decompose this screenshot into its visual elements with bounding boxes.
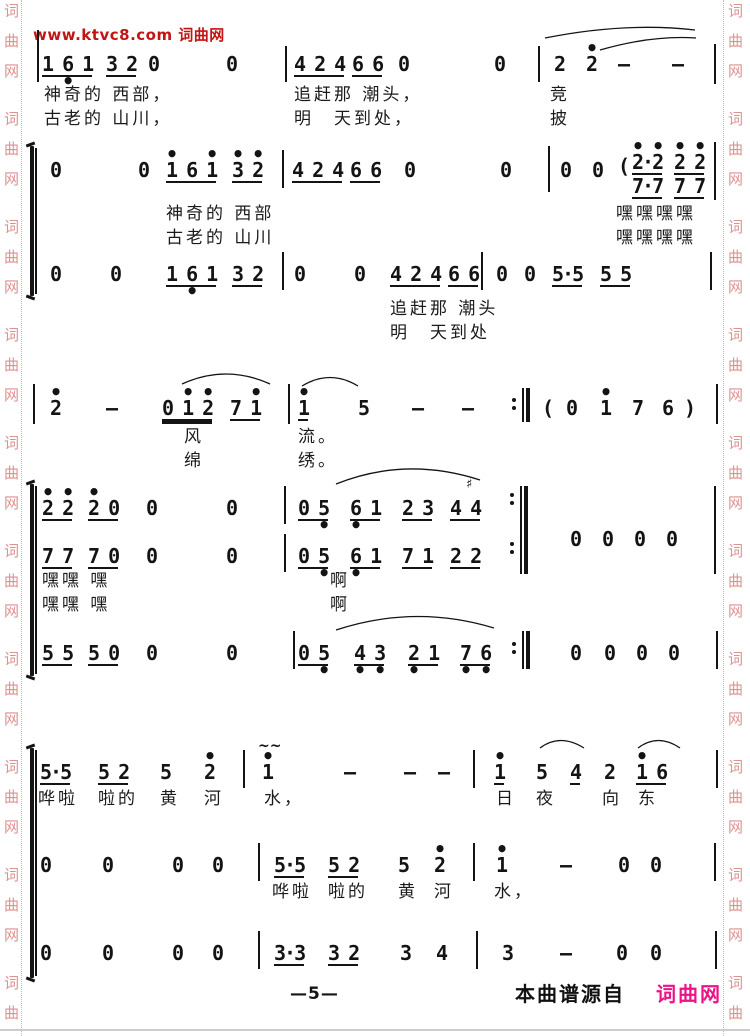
repeat-dot	[510, 542, 514, 546]
note-cell: •1	[600, 388, 610, 430]
note-cell: 0	[110, 254, 120, 296]
note-cell: 1 6 1 •	[42, 44, 92, 86]
bottom-border-line	[0, 1029, 750, 1031]
lyric-text: 黄	[398, 881, 418, 903]
octave-dots	[662, 421, 672, 430]
repeat-dot	[512, 642, 516, 646]
barline	[35, 486, 37, 674]
barline	[282, 150, 284, 188]
note-cell: •2	[50, 388, 60, 430]
octave-dots	[586, 77, 596, 86]
lyric-text: 风	[184, 426, 204, 448]
repeat-dot	[512, 398, 516, 402]
note-cell: 0	[524, 254, 534, 296]
lyric-text: 水，	[264, 788, 304, 810]
octave-dots	[560, 878, 570, 887]
note-cell: 0	[146, 488, 156, 530]
note-cell: 0	[172, 845, 182, 887]
octave-dots	[50, 287, 60, 296]
barline	[284, 486, 286, 524]
octave-dots	[496, 287, 506, 296]
octave-dots	[684, 421, 694, 430]
note-cell: —	[106, 388, 116, 430]
note-cell: —	[560, 845, 570, 887]
octave-dots	[668, 666, 678, 675]
lyric-text: 啊	[330, 594, 350, 616]
note-cell: 3 2	[232, 254, 262, 296]
octave-dots	[600, 421, 610, 430]
octave-dots: • •	[460, 666, 490, 675]
lyric-text: 绵	[184, 450, 204, 472]
barline	[258, 843, 260, 881]
octave-dots	[226, 77, 236, 86]
octave-dots	[358, 421, 368, 430]
lyric-text: 嘿嘿嘿嘿	[616, 227, 696, 249]
repeat-thin-bar	[520, 486, 522, 574]
repeat-thick-bar	[524, 486, 528, 574]
note-cell: 0	[172, 933, 182, 975]
note-cell: 2	[554, 44, 564, 86]
repeat-thin-bar	[522, 631, 524, 669]
lyric-text: 东	[638, 788, 658, 810]
octave-dots	[632, 421, 642, 430]
barline	[35, 750, 37, 976]
note-cell: 7 7	[674, 166, 704, 208]
note-cell: 0	[650, 933, 660, 975]
note-cell: • •0 1 2	[162, 388, 212, 430]
octave-dots	[292, 183, 342, 192]
note-cell: 0	[560, 150, 570, 192]
note-cell: 4 2 4	[294, 44, 344, 86]
note-cell: 0	[138, 150, 148, 192]
mordent-ornament: ~~	[258, 738, 281, 754]
octave-dots	[570, 666, 580, 675]
lyric-text: 披	[550, 108, 570, 130]
octave-dots	[450, 569, 480, 578]
repeat-dot	[510, 501, 514, 505]
octave-dots	[42, 666, 72, 675]
note-cell: —	[672, 44, 682, 86]
octave-dots	[600, 287, 630, 296]
repeat-dot	[510, 550, 514, 554]
octave-dots	[166, 183, 216, 192]
lyric-text: 嘿嘿 嘿	[42, 594, 110, 616]
note-cell: 0	[50, 150, 60, 192]
lyric-text: 明 天到处	[390, 322, 490, 344]
note-cell: 0	[566, 388, 576, 430]
note-cell: 0 5 •	[298, 536, 328, 578]
note-cell: 0	[618, 845, 628, 887]
note-cell: 4	[570, 752, 580, 794]
lyric-text: 哗啦	[272, 881, 312, 903]
octave-dots: •	[166, 287, 216, 296]
barline	[714, 44, 716, 84]
note-cell: 0 5 •	[298, 488, 328, 530]
note-cell: 0	[102, 845, 112, 887]
lyric-text: 向	[602, 788, 622, 810]
octave-dots: •	[408, 666, 438, 675]
octave-dots: •	[350, 569, 380, 578]
note-cell: 0	[40, 845, 50, 887]
octave-dots	[650, 966, 660, 975]
repeat-dot	[512, 650, 516, 654]
note-cell: 6 1•	[350, 488, 380, 530]
note-cell: 0	[500, 150, 510, 192]
octave-dots	[500, 183, 510, 192]
octave-dots	[566, 421, 576, 430]
note-cell: 7	[632, 388, 642, 430]
octave-dots	[226, 666, 236, 675]
note-cell: 0	[212, 933, 222, 975]
note-cell: 3 2	[106, 44, 136, 86]
octave-dots	[552, 287, 582, 296]
lyric-text: 绣。	[298, 450, 338, 472]
octave-dots	[618, 77, 628, 86]
octave-dots	[232, 287, 262, 296]
lyric-text: 古老的 山川	[166, 227, 274, 249]
note-cell: 0	[602, 519, 612, 561]
note-cell: 7 6• •	[460, 633, 490, 675]
barline	[33, 384, 35, 424]
score-canvas: 1 6 1 • 3 2 0 0 4 2 4 6 6 0 0 2 •2 — — 0…	[0, 0, 750, 1036]
note-cell: • •2 2	[42, 488, 72, 530]
barline	[716, 750, 718, 788]
octave-dots	[618, 878, 628, 887]
octave-dots	[40, 878, 50, 887]
octave-dots	[436, 966, 446, 975]
octave-dots: • •	[354, 666, 384, 675]
octave-dots	[560, 183, 570, 192]
note-cell: 5·5	[552, 254, 582, 296]
note-cell: 4	[436, 933, 446, 975]
note-cell: 0	[50, 254, 60, 296]
octave-dots	[212, 878, 222, 887]
note-cell: 0	[226, 633, 236, 675]
note-cell: —	[438, 752, 448, 794]
octave-dots	[400, 966, 410, 975]
octave-dots	[50, 421, 60, 430]
barline	[714, 843, 716, 881]
note-cell: 4 2 4	[292, 150, 342, 192]
note-cell: 0	[650, 845, 660, 887]
octave-dots	[602, 552, 612, 561]
note-cell: •1	[298, 388, 308, 430]
barline	[538, 46, 540, 82]
note-cell: 0	[570, 633, 580, 675]
note-cell: 6 6	[352, 44, 382, 86]
note-cell: 6	[662, 388, 672, 430]
barline	[710, 252, 712, 290]
note-cell: 7·7	[632, 166, 662, 208]
repeat-thick-bar	[526, 388, 530, 422]
octave-dots	[232, 183, 262, 192]
lyric-text: 古老的 山川，	[44, 108, 172, 130]
note-cell: 3	[502, 933, 512, 975]
note-cell: 0	[494, 44, 504, 86]
page-number: —5—	[290, 984, 339, 1004]
barline	[473, 843, 475, 881]
note-cell: 1 6 1 •	[166, 254, 216, 296]
sheet-music-page: 词曲网词曲网词曲网词曲网词曲网词曲网词曲网词曲网词曲网词曲网 词曲网词曲网词曲网…	[0, 0, 750, 1036]
barline	[476, 931, 478, 969]
footer-brand-link[interactable]: 词曲网	[656, 978, 722, 1007]
octave-dots	[560, 966, 570, 975]
octave-dots	[494, 77, 504, 86]
note-cell: 0	[570, 519, 580, 561]
note-cell: 0	[226, 536, 236, 578]
note-cell: —	[344, 752, 354, 794]
octave-dots	[102, 966, 112, 975]
note-cell: 0	[212, 845, 222, 887]
note-cell: 6 6	[448, 254, 478, 296]
note-cell: 0	[146, 633, 156, 675]
note-cell: 4 3• •	[354, 633, 384, 675]
note-cell: 0 5 •	[298, 633, 328, 675]
note-cell: • •3 2	[232, 150, 262, 192]
octave-dots	[50, 183, 60, 192]
lyric-text: 河	[204, 788, 224, 810]
note-cell: —	[618, 44, 628, 86]
note-cell: 0	[226, 488, 236, 530]
octave-dots	[354, 287, 364, 296]
note-cell: 0	[616, 933, 626, 975]
note-cell: 0	[40, 933, 50, 975]
octave-dots	[570, 552, 580, 561]
note-cell: 7 1	[402, 536, 432, 578]
repeat-thick-bar	[526, 631, 530, 669]
barline	[481, 252, 483, 290]
octave-dots	[172, 878, 182, 887]
note-cell: 0	[634, 519, 644, 561]
octave-dots	[404, 785, 414, 794]
note-cell: 2 1•	[408, 633, 438, 675]
octave-dots	[110, 287, 120, 296]
note-cell: • •1 6 1	[166, 150, 216, 192]
octave-dots	[230, 421, 260, 430]
lyric-text: 黄	[160, 788, 180, 810]
octave-dots	[672, 77, 682, 86]
note-cell: )	[684, 388, 694, 430]
lyric-text: 啊	[330, 570, 350, 592]
repeat-dot	[512, 406, 516, 410]
barline	[258, 931, 260, 969]
barline	[284, 534, 286, 572]
note-cell: 3·3	[274, 933, 304, 975]
octave-dots: •	[298, 569, 328, 578]
note-cell: (	[618, 146, 628, 188]
note-cell: (	[542, 388, 552, 430]
octave-dots	[404, 183, 414, 192]
note-cell: 3 2	[328, 933, 358, 975]
note-cell: 0	[148, 44, 158, 86]
footer-source-text: 本曲谱源自	[515, 978, 625, 1007]
barline	[37, 30, 39, 82]
lyric-text: 神奇的 西部，	[44, 84, 172, 106]
note-cell: 0	[146, 536, 156, 578]
octave-dots	[604, 666, 614, 675]
lyric-text: 啦的	[98, 788, 138, 810]
note-cell: 6 1•	[350, 536, 380, 578]
system-bracket	[30, 748, 34, 978]
note-cell: • 2 0	[88, 488, 118, 530]
octave-dots	[106, 421, 116, 430]
note-cell: 5 5	[600, 254, 630, 296]
sharp-accidental: ♯	[466, 477, 472, 492]
barline	[716, 384, 718, 424]
barline	[243, 750, 245, 788]
note-cell: •7 1	[230, 388, 260, 430]
note-cell: 0	[294, 254, 304, 296]
note-cell: 2 2	[450, 536, 480, 578]
system-bracket	[30, 484, 34, 676]
octave-dots	[88, 666, 118, 675]
octave-dots	[212, 966, 222, 975]
octave-dots	[40, 966, 50, 975]
barline	[716, 631, 718, 669]
barline	[714, 142, 716, 200]
note-cell: 0	[398, 44, 408, 86]
lyric-text: 追赶那 潮头	[390, 298, 498, 320]
lyric-text: 河	[434, 881, 454, 903]
note-cell: 5 0	[88, 633, 118, 675]
octave-dots	[592, 183, 602, 192]
note-cell: 3	[400, 933, 410, 975]
note-cell: 4 4	[450, 488, 480, 530]
lyric-text: 嘿嘿 嘿	[42, 570, 110, 592]
octave-dots	[616, 966, 626, 975]
octave-dots	[402, 569, 432, 578]
octave-dots	[102, 878, 112, 887]
lyric-text: 啦的	[328, 881, 368, 903]
lyric-text: 竞	[550, 84, 570, 106]
note-cell: 0	[354, 254, 364, 296]
note-cell: 6 6	[350, 150, 380, 192]
octave-dots	[634, 552, 644, 561]
octave-dots	[390, 287, 440, 296]
lyric-text: 追赶那 潮头，	[294, 84, 422, 106]
octave-dots	[448, 287, 478, 296]
barline	[35, 148, 37, 294]
lyric-text: 流。	[298, 426, 338, 448]
octave-dots	[350, 183, 380, 192]
note-cell: —	[404, 752, 414, 794]
lyric-text: 水，	[494, 881, 534, 903]
octave-dots	[274, 966, 304, 975]
repeat-thin-bar	[522, 388, 524, 422]
note-cell: —	[560, 933, 570, 975]
octave-dots	[666, 552, 676, 561]
lyric-text: 哗啦	[38, 788, 78, 810]
barline	[288, 384, 290, 424]
note-cell: 0	[102, 933, 112, 975]
note-cell: —	[412, 388, 422, 430]
note-cell: 0	[404, 150, 414, 192]
octave-dots	[328, 966, 358, 975]
lyric-text: 明 天到处，	[294, 108, 414, 130]
note-cell: 0	[604, 633, 614, 675]
barline	[473, 750, 475, 788]
octave-dots	[524, 287, 534, 296]
octave-dots	[542, 421, 552, 430]
octave-dots: •	[298, 666, 328, 675]
octave-dots	[636, 666, 646, 675]
note-cell: 4 2 4	[390, 254, 440, 296]
note-cell: 0	[592, 150, 602, 192]
lyric-text: 神奇的 西部	[166, 203, 274, 225]
octave-dots	[294, 287, 304, 296]
barline	[548, 146, 550, 192]
octave-dots	[462, 421, 472, 430]
note-cell: 0	[496, 254, 506, 296]
note-cell: 5	[358, 388, 368, 430]
repeat-dot	[510, 493, 514, 497]
octave-dots	[618, 179, 628, 188]
note-cell: 5 5	[42, 633, 72, 675]
octave-dots	[412, 421, 422, 430]
note-cell: 0	[636, 633, 646, 675]
octave-dots	[502, 966, 512, 975]
octave-dots	[138, 183, 148, 192]
barline	[285, 46, 287, 82]
note-cell: 0	[666, 519, 676, 561]
note-cell: 2 3	[402, 488, 432, 530]
octave-dots	[344, 785, 354, 794]
lyric-text: 日	[496, 788, 516, 810]
note-cell: —	[462, 388, 472, 430]
octave-dots	[570, 785, 580, 794]
octave-dots	[438, 785, 448, 794]
note-cell: 0	[668, 633, 678, 675]
octave-dots	[146, 569, 156, 578]
note-cell: 0	[226, 44, 236, 86]
barline	[715, 931, 717, 969]
octave-dots	[146, 666, 156, 675]
barline	[714, 486, 716, 574]
octave-dots	[226, 569, 236, 578]
system-bracket	[30, 146, 34, 296]
barline	[293, 631, 295, 669]
octave-dots	[650, 878, 660, 887]
lyric-text: 夜	[536, 788, 556, 810]
lyric-text: 嘿嘿嘿嘿	[616, 203, 696, 225]
octave-dots	[172, 966, 182, 975]
note-cell: •2	[586, 44, 596, 86]
barline	[282, 252, 284, 290]
